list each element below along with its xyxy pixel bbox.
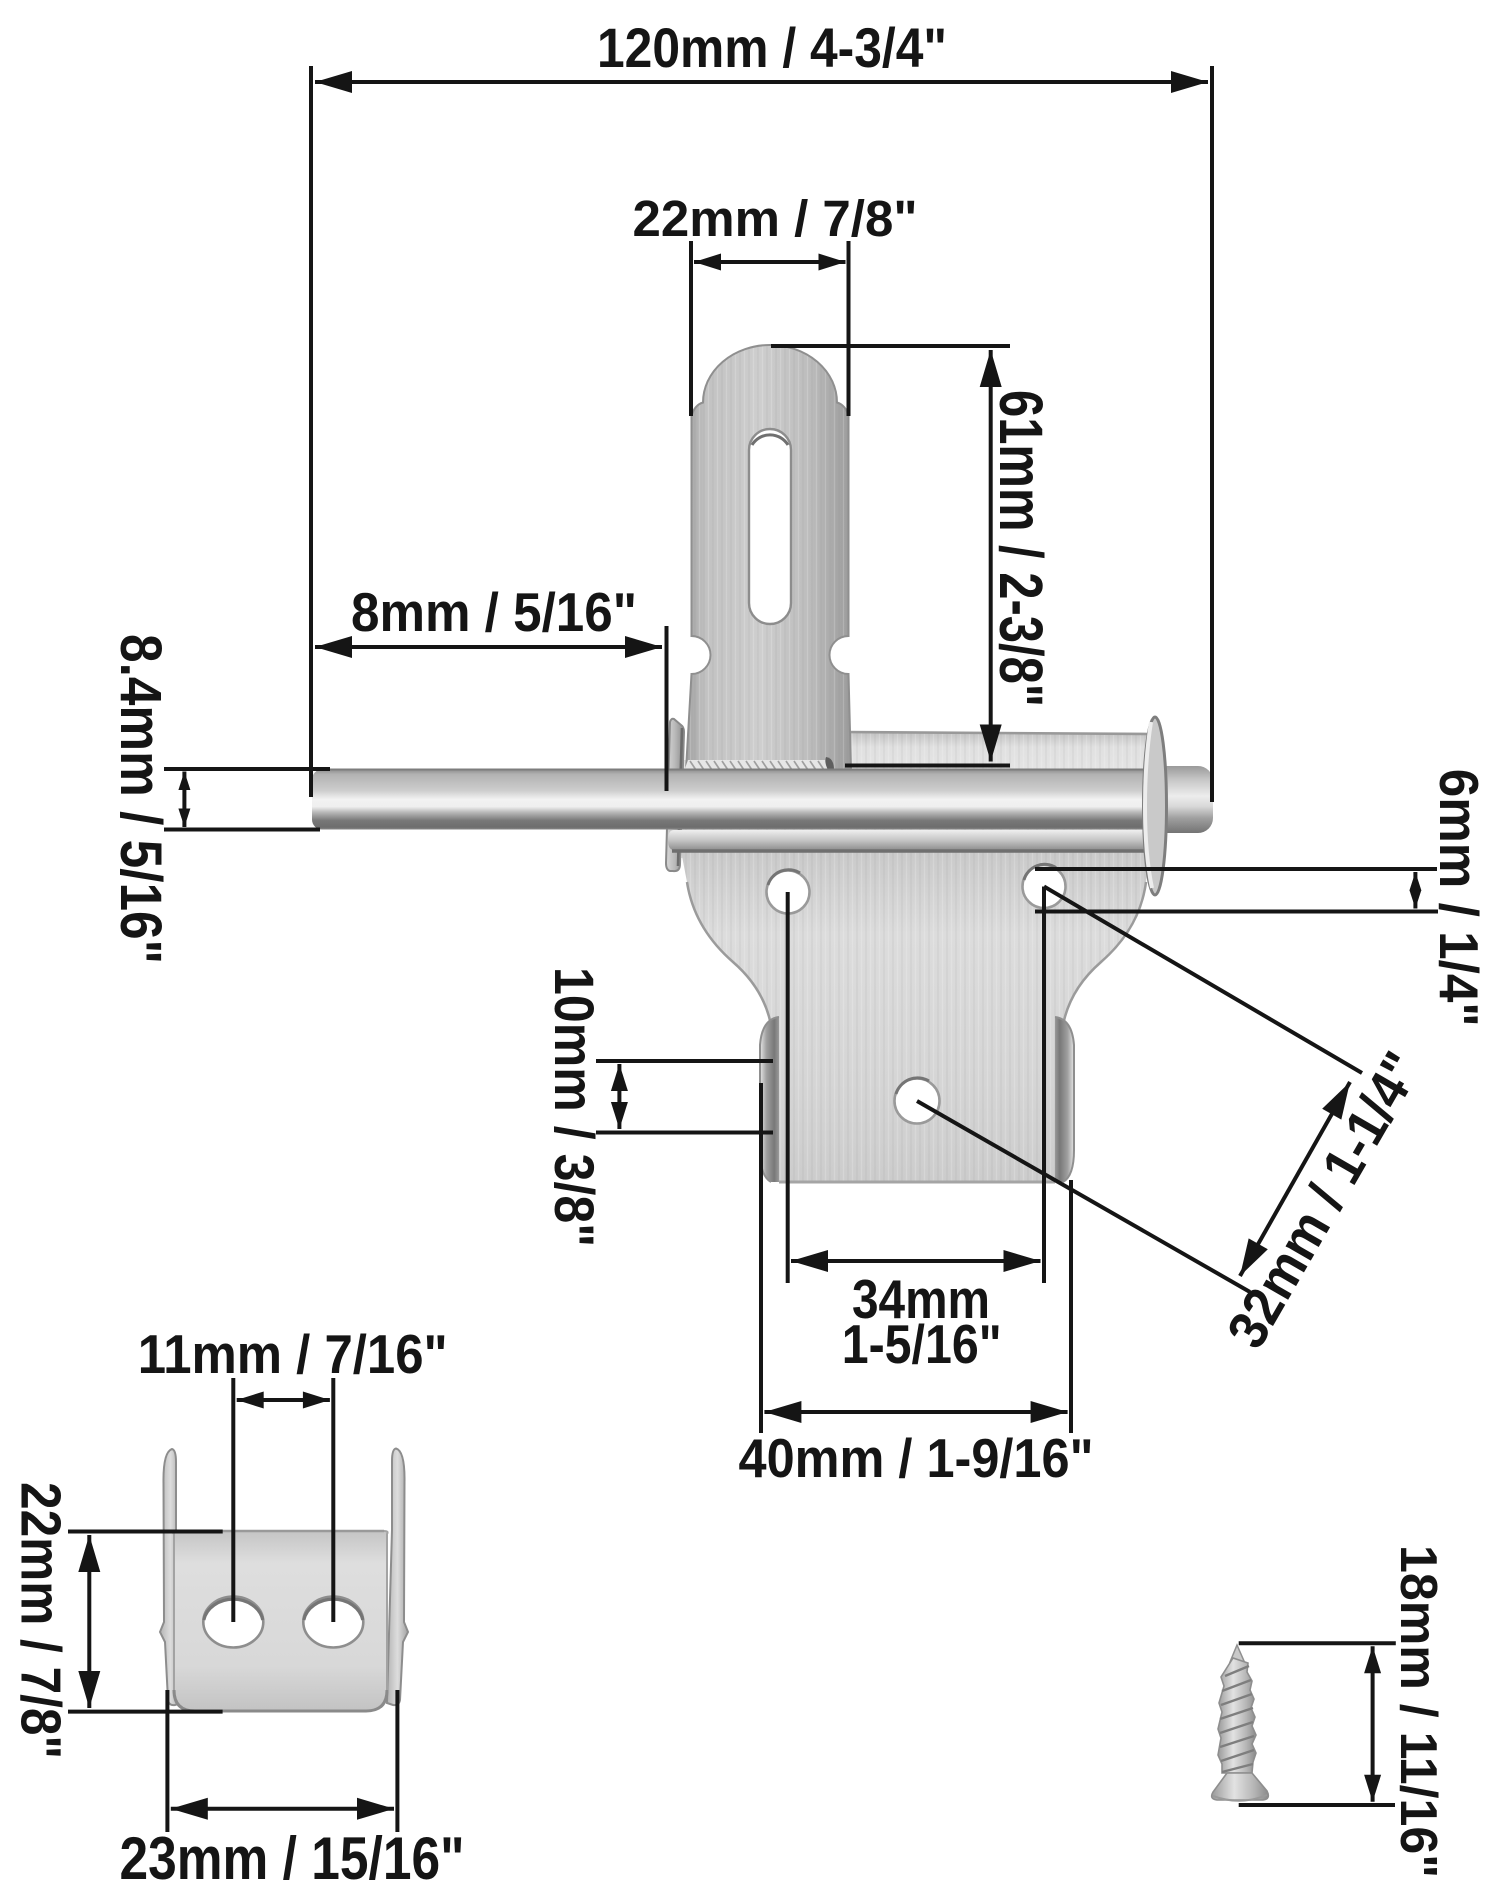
svg-text:1-5/16": 1-5/16" xyxy=(842,1313,1002,1375)
svg-text:120mm / 4-3/4": 120mm / 4-3/4" xyxy=(597,16,947,79)
svg-text:6mm / 1/4": 6mm / 1/4" xyxy=(1428,769,1490,1027)
svg-text:40mm / 1-9/16": 40mm / 1-9/16" xyxy=(739,1427,1094,1489)
svg-text:18mm / 11/16": 18mm / 11/16" xyxy=(1389,1545,1447,1878)
svg-text:8.4mm / 5/16": 8.4mm / 5/16" xyxy=(108,634,173,964)
svg-text:23mm / 15/16": 23mm / 15/16" xyxy=(120,1825,465,1892)
svg-text:10mm / 3/8": 10mm / 3/8" xyxy=(543,967,606,1247)
svg-text:8mm / 5/16": 8mm / 5/16" xyxy=(351,581,637,643)
svg-text:11mm / 7/16": 11mm / 7/16" xyxy=(138,1323,448,1385)
svg-text:61mm / 2-3/8": 61mm / 2-3/8" xyxy=(987,390,1055,707)
svg-text:22mm / 7/8": 22mm / 7/8" xyxy=(633,190,918,247)
svg-text:22mm / 7/8": 22mm / 7/8" xyxy=(9,1482,73,1759)
